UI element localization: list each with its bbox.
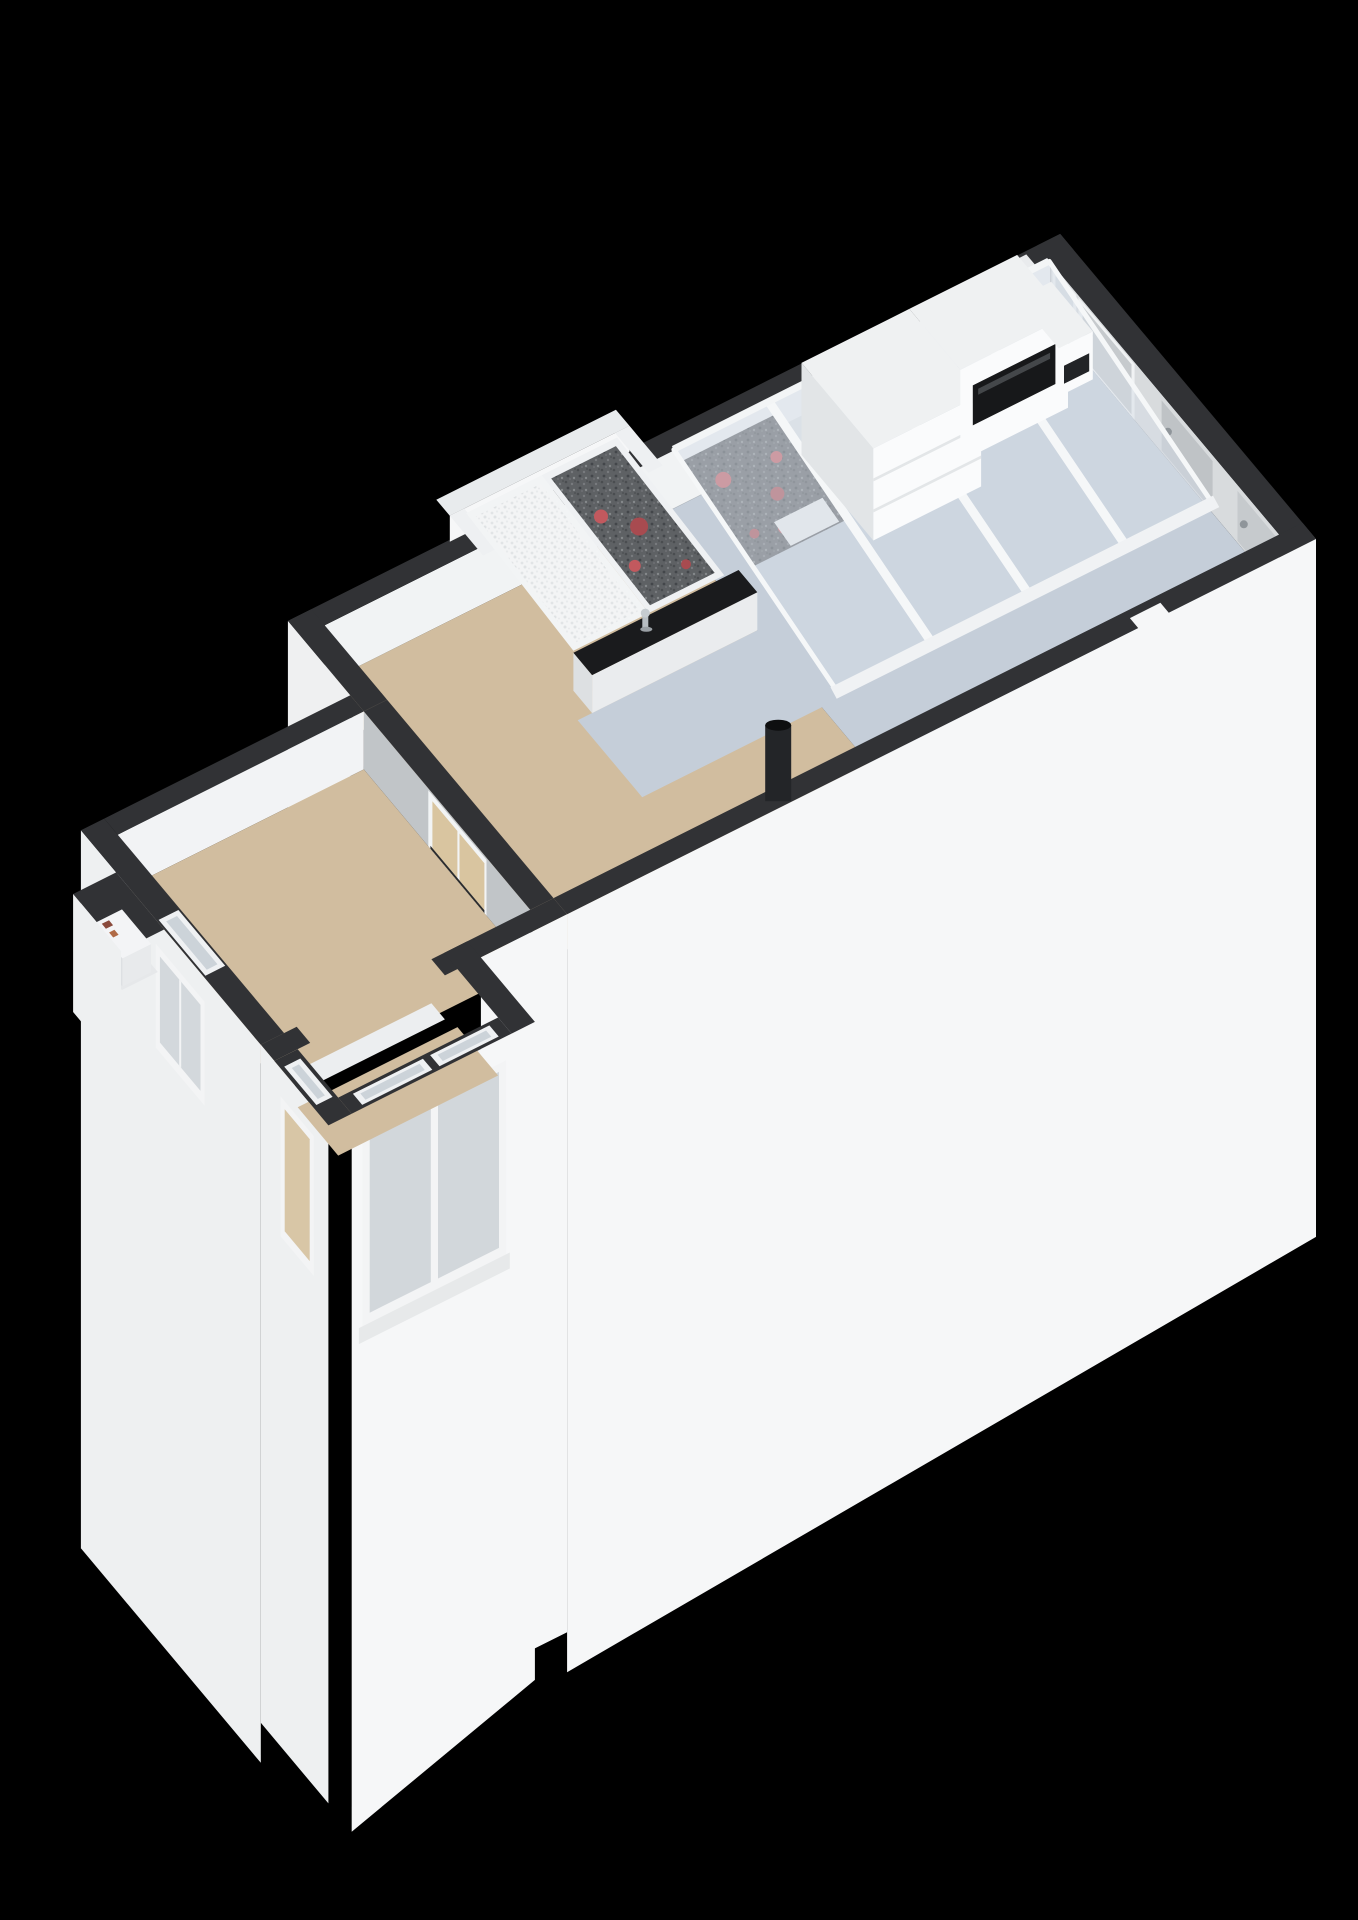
stove-burner-2 xyxy=(630,518,648,536)
stove-burner-4 xyxy=(681,559,691,569)
faucet-base xyxy=(640,627,652,632)
floorplan-scene xyxy=(0,0,1358,1920)
chimney-pipe-top xyxy=(765,720,791,731)
west-window-mullion xyxy=(179,980,181,1068)
stove-burner-3 xyxy=(629,560,641,572)
bay-front-window-pane-2 xyxy=(438,1072,499,1279)
chimney-pipe xyxy=(765,725,791,801)
floorplan-3d-render xyxy=(0,0,1358,1920)
bay-front-window-pane-1 xyxy=(370,1106,431,1313)
faucet-spout xyxy=(641,609,650,618)
stove-burner-1 xyxy=(594,510,608,524)
closet-door-3-handle xyxy=(1240,520,1248,528)
scene-root xyxy=(0,0,1358,1920)
